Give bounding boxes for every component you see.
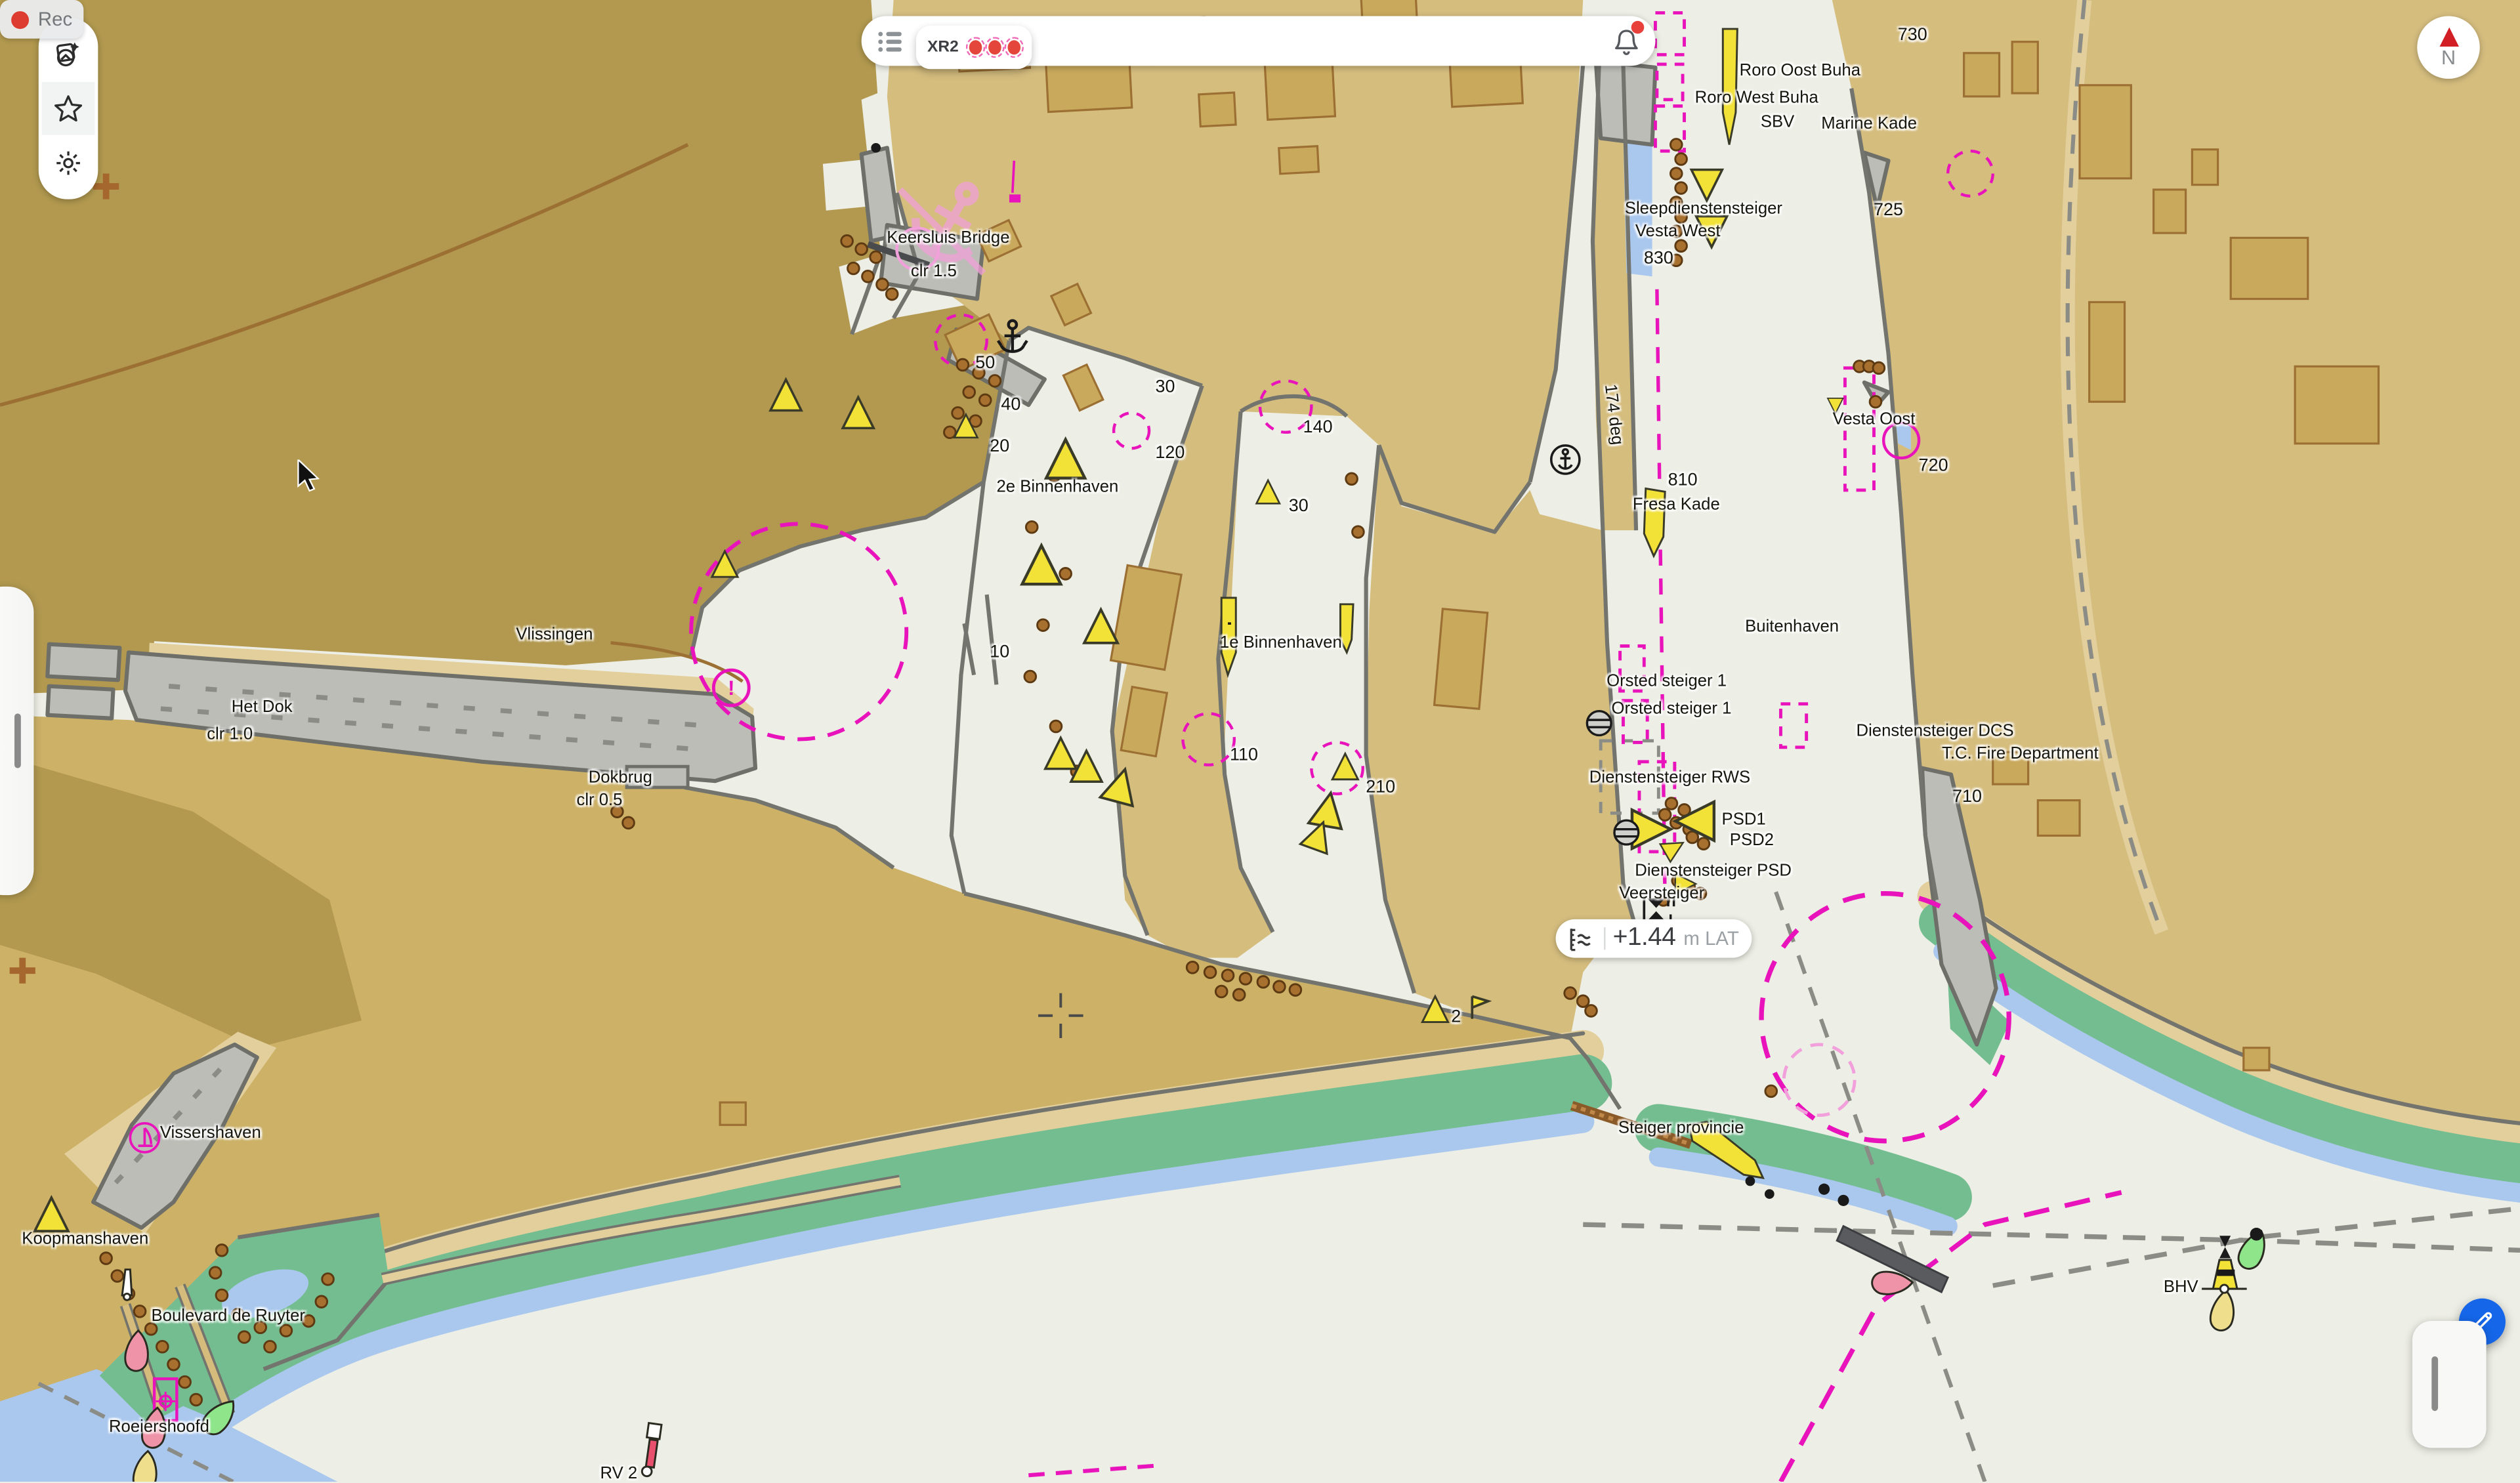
alert-dot-icon: [1009, 40, 1022, 54]
alert-dots: [970, 40, 1021, 54]
settings-button[interactable]: [42, 136, 95, 190]
tide-divider: [1603, 927, 1605, 950]
search-bar[interactable]: XR2: [862, 16, 1656, 66]
star-icon: [53, 93, 84, 124]
gear-icon: [53, 148, 84, 178]
left-toolbar: [39, 18, 98, 199]
right-drawer-handle[interactable]: [2412, 1321, 2487, 1448]
record-label: Rec: [38, 8, 72, 30]
compass-button[interactable]: N: [2417, 16, 2480, 79]
left-drawer-handle[interactable]: [0, 587, 33, 895]
nautical-chart-map[interactable]: !: [0, 0, 2520, 1482]
record-button[interactable]: Rec: [0, 0, 83, 39]
alert-dot-icon: [970, 40, 983, 54]
drag-handle-icon: [14, 713, 21, 768]
vessel-chip[interactable]: XR2: [916, 26, 1032, 69]
notification-badge: [1631, 20, 1645, 33]
tide-indicator[interactable]: +1.44 m LAT: [1556, 919, 1752, 958]
app-logo-icon: [53, 39, 84, 70]
drag-handle-icon: [2431, 1356, 2437, 1411]
record-dot-icon: [11, 10, 28, 28]
tide-value: +1.44: [1613, 924, 1676, 953]
tide-gauge-icon: [1568, 927, 1595, 951]
alert-dot-icon: [989, 40, 1002, 54]
svg-text:!: !: [728, 676, 735, 700]
favorites-button[interactable]: [42, 82, 95, 135]
compass-north-label: N: [2441, 48, 2456, 67]
vessel-name: XR2: [927, 39, 959, 56]
tide-unit: m LAT: [1683, 927, 1738, 950]
app-stage: !: [0, 0, 2520, 1482]
notifications-button[interactable]: [1614, 26, 1639, 55]
list-icon: [877, 30, 903, 52]
north-arrow-icon: [2439, 28, 2458, 47]
